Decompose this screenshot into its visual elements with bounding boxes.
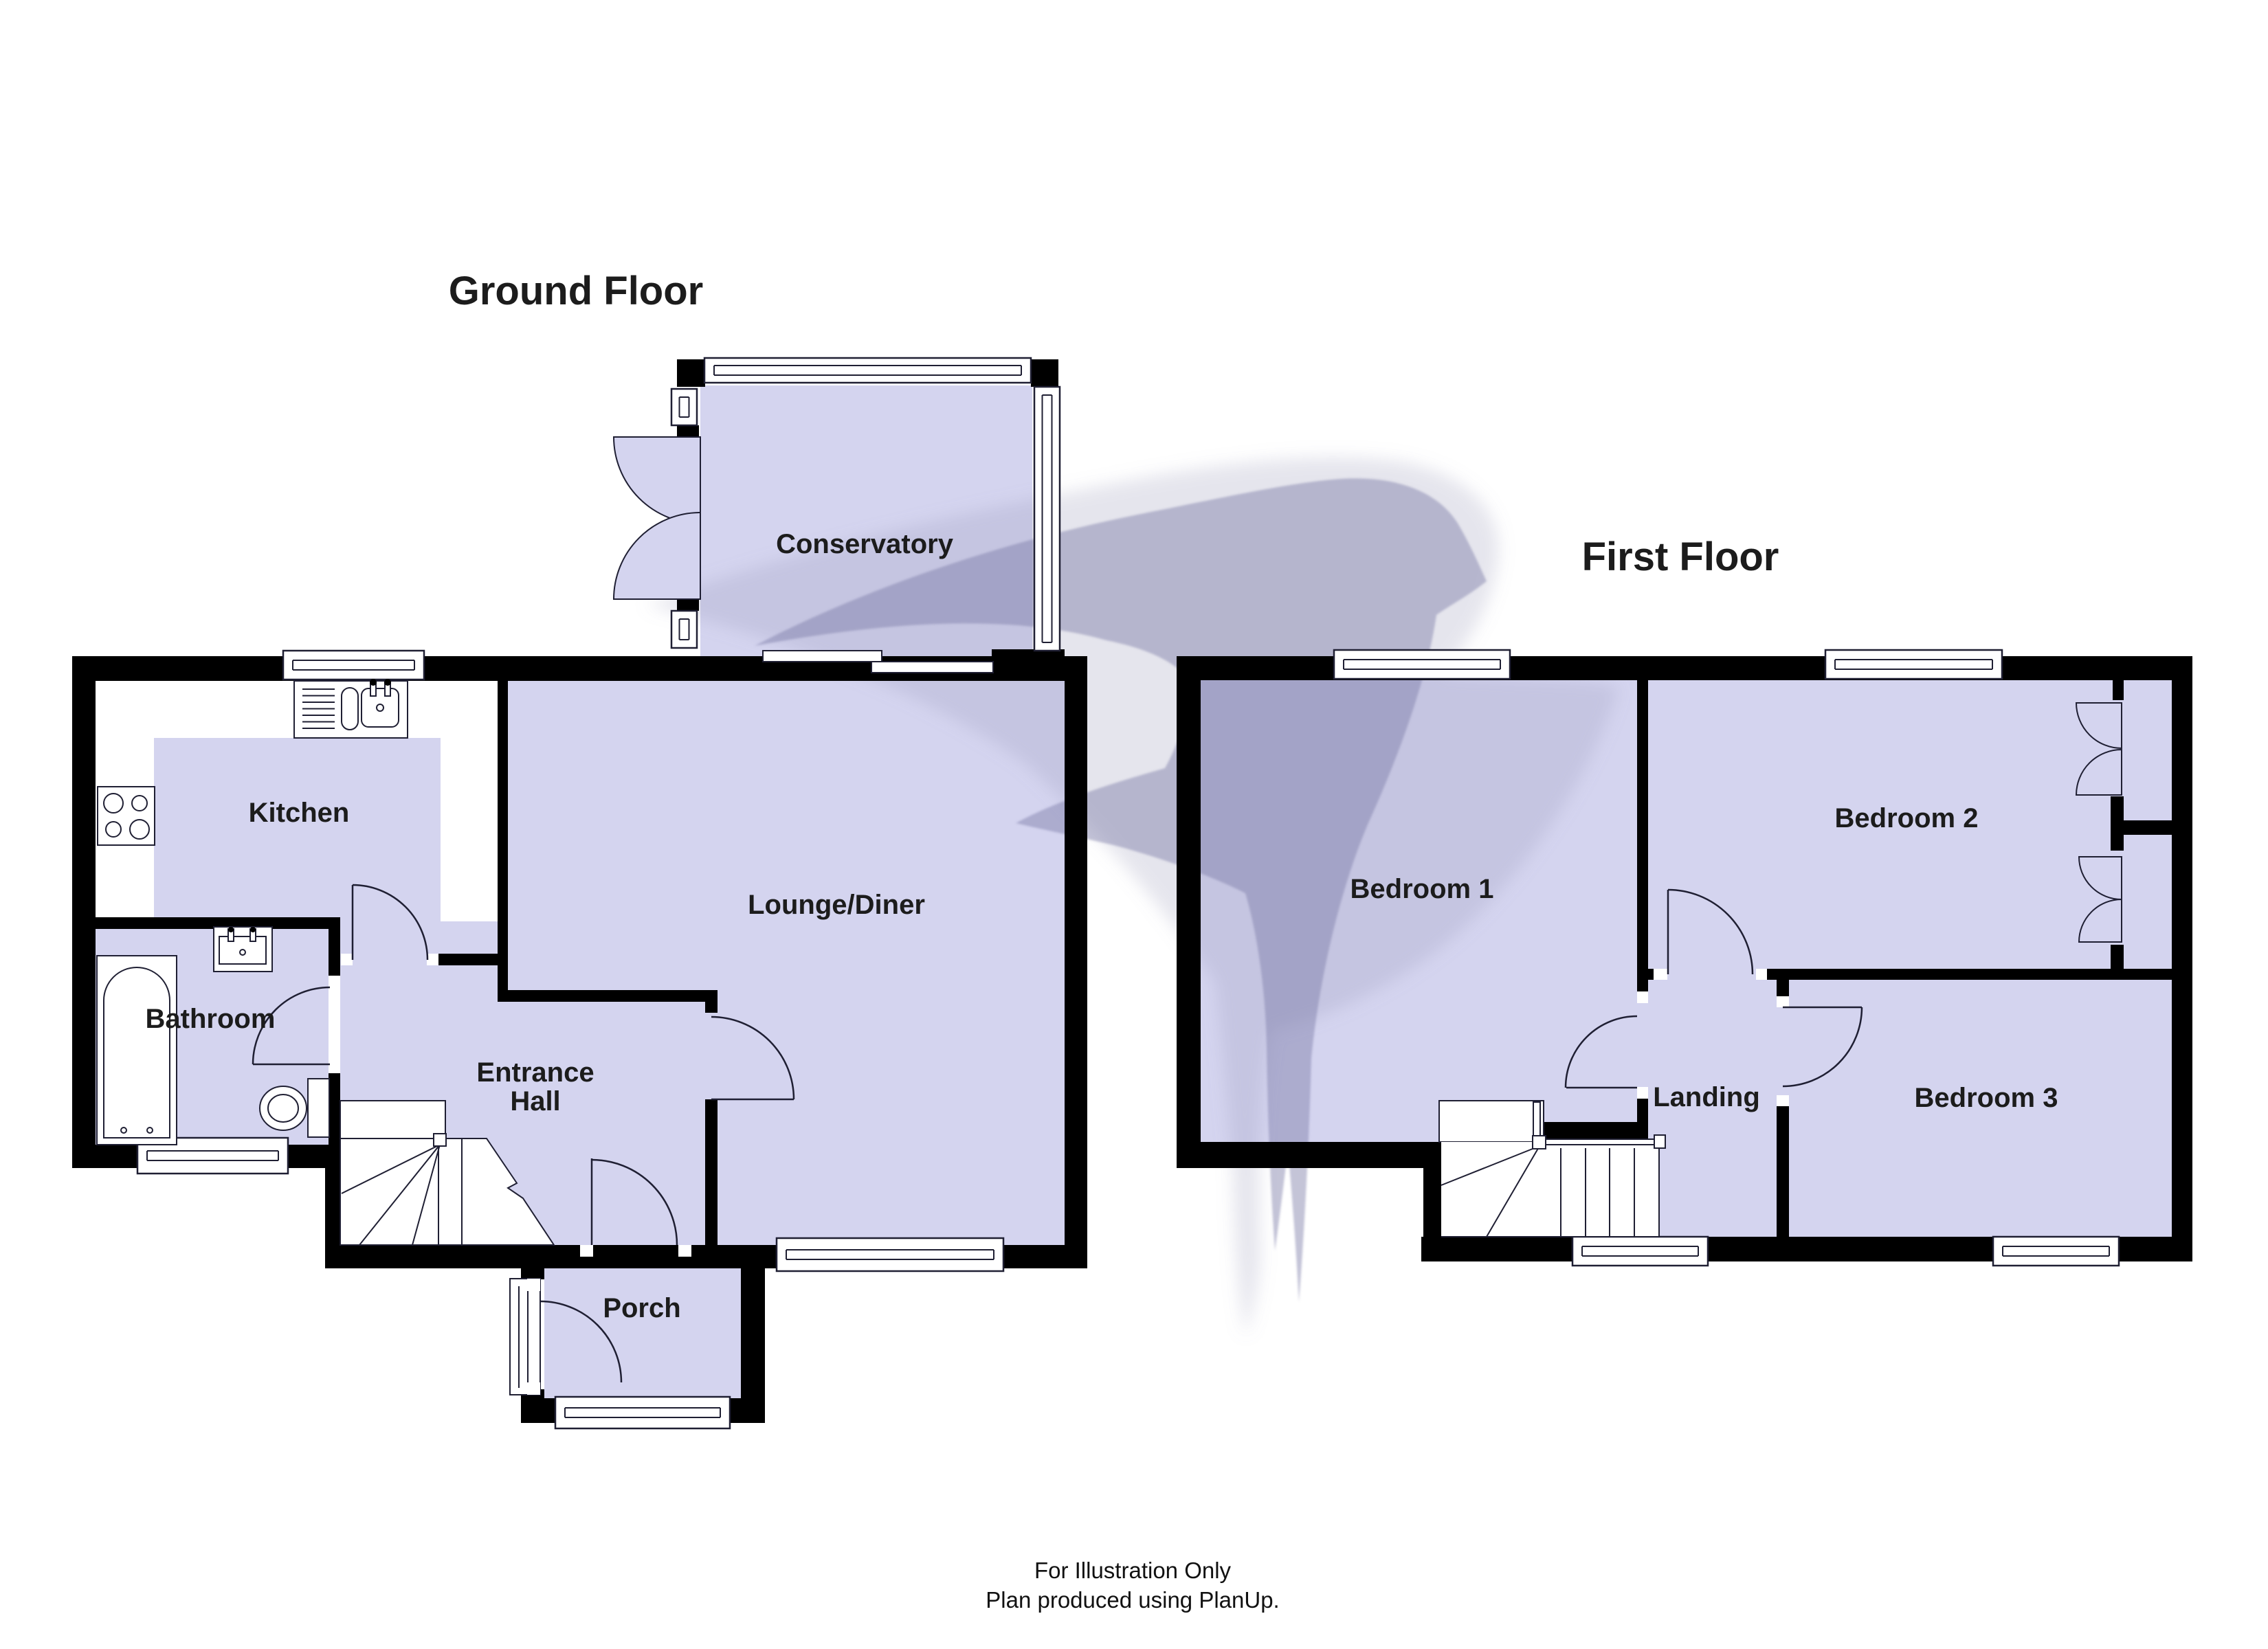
svg-text:Plan produced using PlanUp.: Plan produced using PlanUp. [986, 1587, 1279, 1613]
svg-text:Bedroom 1: Bedroom 1 [1350, 874, 1494, 904]
svg-text:Kitchen: Kitchen [249, 798, 350, 828]
svg-text:Bedroom 3: Bedroom 3 [1915, 1083, 2058, 1113]
svg-text:Bedroom 2: Bedroom 2 [1835, 803, 1979, 833]
svg-text:Hall: Hall [510, 1086, 560, 1117]
svg-text:Porch: Porch [603, 1293, 680, 1323]
svg-text:Landing: Landing [1653, 1082, 1760, 1112]
svg-text:Bathroom: Bathroom [146, 1004, 276, 1034]
svg-text:Ground Floor: Ground Floor [449, 269, 704, 313]
svg-text:Lounge/Diner: Lounge/Diner [748, 890, 925, 920]
svg-text:Conservatory: Conservatory [776, 529, 954, 559]
svg-text:First Floor: First Floor [1582, 535, 1779, 579]
svg-text:For Illustration Only: For Illustration Only [1034, 1558, 1232, 1583]
svg-text:Entrance: Entrance [476, 1057, 594, 1088]
